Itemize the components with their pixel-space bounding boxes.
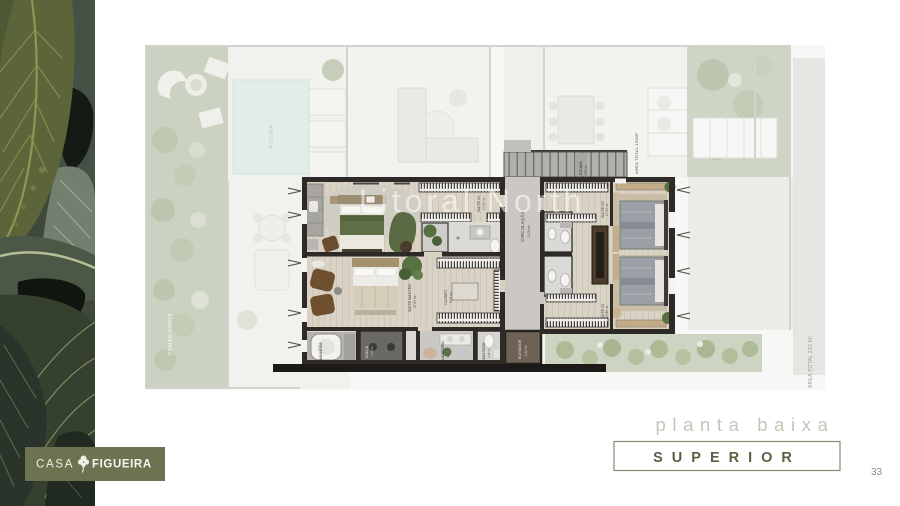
svg-text:Litoral North: Litoral North <box>359 183 585 219</box>
svg-text:17,09 m²: 17,09 m² <box>605 203 609 216</box>
svg-text:4,75 m²: 4,75 m² <box>584 165 588 176</box>
svg-text:POMAR/HORTA: POMAR/HORTA <box>168 313 174 355</box>
svg-text:13,09 m²: 13,09 m² <box>527 224 531 238</box>
svg-text:AREA TOTAL 150M²: AREA TOTAL 150M² <box>634 132 639 174</box>
svg-text:17,80 m²: 17,80 m² <box>605 305 609 318</box>
svg-text:6,02 m²: 6,02 m² <box>446 348 450 358</box>
svg-text:1,42 m²: 1,42 m² <box>524 345 528 356</box>
svg-text:27,05 m²: 27,05 m² <box>413 295 417 308</box>
svg-text:AREA TOTAL 233 M²: AREA TOTAL 233 M² <box>808 336 814 388</box>
svg-text:SANITÁRIO: SANITÁRIO <box>482 342 486 360</box>
svg-text:LAVATÓRIO: LAVATÓRIO <box>440 341 445 360</box>
svg-text:3,80 m²: 3,80 m² <box>370 346 374 356</box>
svg-text:ESCADA: ESCADA <box>579 161 583 175</box>
svg-text:SUITE MASTER: SUITE MASTER <box>408 284 412 312</box>
svg-text:PISCINA: PISCINA <box>269 124 275 148</box>
svg-text:ELEVADOR: ELEVADOR <box>518 339 522 359</box>
svg-text:planta baixa: planta baixa <box>656 414 835 435</box>
svg-text:CASA: CASA <box>36 459 74 471</box>
svg-text:SUPERIOR: SUPERIOR <box>653 450 801 466</box>
svg-text:8,01 m²: 8,01 m² <box>449 292 453 303</box>
svg-text:CLOSET: CLOSET <box>444 289 448 305</box>
svg-text:DUCHA: DUCHA <box>365 345 369 358</box>
svg-text:33: 33 <box>871 467 883 478</box>
svg-text:FIGUEIRA: FIGUEIRA <box>92 459 152 471</box>
svg-text:2,09 m²: 2,09 m² <box>487 348 491 358</box>
svg-text:BANHEIRA: BANHEIRA <box>319 342 323 360</box>
